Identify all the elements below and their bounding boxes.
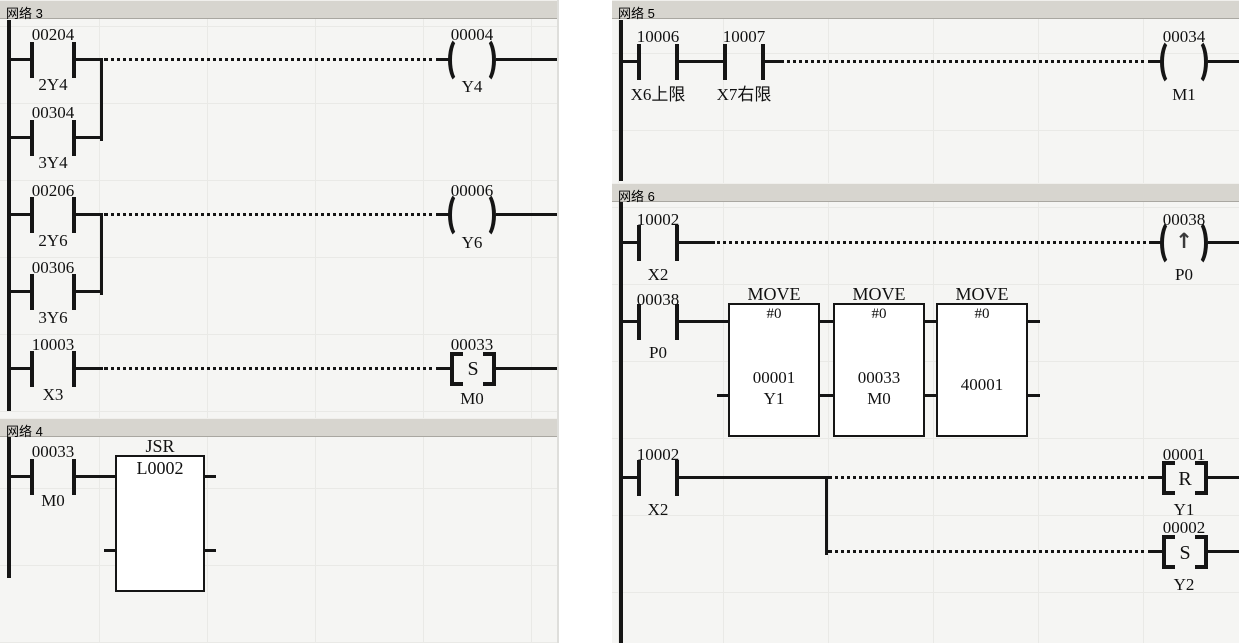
wire	[765, 60, 780, 63]
symbol-label: X6上限	[631, 86, 686, 103]
block-operand: Y1	[764, 390, 785, 407]
address-label: 00038	[637, 291, 680, 308]
wire	[205, 549, 216, 552]
wire	[1208, 241, 1239, 244]
branch-wire	[825, 476, 828, 555]
wire	[76, 367, 103, 370]
contact-bar[interactable]	[637, 460, 641, 496]
wire	[9, 136, 30, 139]
symbol-label: X2	[648, 501, 669, 518]
address-label: 10003	[32, 336, 75, 353]
contact-bar[interactable]	[637, 304, 641, 340]
branch-wire	[100, 213, 103, 295]
wire	[679, 476, 828, 479]
power-rail	[619, 202, 623, 643]
block-operand: #0	[872, 307, 887, 322]
coil-function-letter: R	[1178, 469, 1191, 489]
wire	[9, 367, 30, 370]
wire	[76, 290, 102, 293]
contact-bar[interactable]	[30, 459, 34, 495]
address-label: 00001	[1163, 446, 1206, 463]
symbol-label: M0	[41, 492, 65, 509]
address-label: 00204	[32, 26, 75, 43]
network-header-4[interactable]: 网络 4	[0, 418, 557, 437]
move-block[interactable]	[936, 303, 1028, 437]
address-label: 00006	[451, 182, 494, 199]
block-operand: M0	[867, 390, 891, 407]
wire	[1208, 476, 1239, 479]
symbol-label: 3Y4	[38, 154, 67, 171]
wire	[76, 213, 103, 216]
wire	[1028, 394, 1040, 397]
network-title: 网络 6	[618, 189, 655, 204]
block-operand: 00033	[858, 369, 901, 386]
wire-dotted	[828, 550, 1152, 553]
contact-bar[interactable]	[30, 120, 34, 156]
contact-bar[interactable]	[637, 44, 641, 80]
wire-dotted	[104, 58, 440, 61]
wire	[76, 475, 115, 478]
branch-wire	[100, 58, 103, 141]
symbol-label: M0	[460, 390, 484, 407]
wire-dotted	[828, 476, 1152, 479]
network-header-6[interactable]: 网络 6	[612, 183, 1239, 202]
address-label: 00034	[1163, 28, 1206, 45]
symbol-label: X3	[43, 386, 64, 403]
wire-dotted	[104, 367, 440, 370]
ladder-panel-right: 网络 5 10006 X6上限 10007 X7右限 00034 M1 网络 6	[612, 0, 1239, 643]
symbol-label: P0	[1175, 266, 1193, 283]
wire	[1152, 550, 1162, 553]
wire	[9, 290, 30, 293]
wire	[679, 241, 712, 244]
wire-dotted	[780, 60, 1152, 63]
wire	[621, 60, 637, 63]
block-operand: #0	[767, 307, 782, 322]
address-label: 00306	[32, 259, 75, 276]
contact-bar[interactable]	[30, 42, 34, 78]
address-label: 00304	[32, 104, 75, 121]
address-label: 10002	[637, 211, 680, 228]
wire	[496, 367, 557, 370]
wire-dotted	[712, 241, 1152, 244]
address-label: 00033	[32, 443, 75, 460]
contact-bar[interactable]	[637, 225, 641, 261]
wire	[496, 58, 557, 61]
block-title: MOVE	[956, 285, 1009, 303]
wire	[9, 213, 30, 216]
wire	[621, 241, 637, 244]
wire	[76, 58, 103, 61]
symbol-label: Y1	[1174, 501, 1195, 518]
wire	[621, 476, 637, 479]
block-operand: 00001	[753, 369, 796, 386]
wire-dotted	[104, 213, 440, 216]
wire	[9, 475, 30, 478]
wire	[1028, 320, 1040, 323]
address-label: 00004	[451, 26, 494, 43]
block-operand: L0002	[137, 459, 184, 477]
contact-bar[interactable]	[30, 197, 34, 233]
address-label: 00002	[1163, 519, 1206, 536]
rising-edge-arrow-icon: ↑	[1175, 231, 1193, 252]
wire	[1208, 550, 1239, 553]
symbol-label: X2	[648, 266, 669, 283]
network-title: 网络 3	[6, 6, 43, 21]
wire	[679, 60, 723, 63]
wire	[925, 394, 936, 397]
block-title: JSR	[145, 437, 174, 455]
symbol-label: Y2	[1174, 576, 1195, 593]
address-label: 00033	[451, 336, 494, 353]
coil-open-bracket-icon[interactable]	[1162, 461, 1175, 495]
block-title: MOVE	[748, 285, 801, 303]
address-label: 10006	[637, 28, 680, 45]
address-label: 00206	[32, 182, 75, 199]
contact-bar[interactable]	[723, 44, 727, 80]
symbol-label: X7右限	[717, 86, 772, 103]
ladder-panel-left: 网络 3 00204 2Y4 00004 Y4 00304 3Y4	[0, 0, 559, 643]
power-rail	[7, 437, 11, 578]
symbol-label: 3Y6	[38, 309, 67, 326]
wire	[1152, 476, 1162, 479]
coil-close-bracket-icon[interactable]	[1195, 461, 1208, 495]
address-label: 10002	[637, 446, 680, 463]
network-header-3[interactable]: 网络 3	[0, 0, 557, 19]
wire	[820, 394, 833, 397]
block-operand: #0	[975, 307, 990, 322]
coil-close-bracket-icon[interactable]	[1195, 535, 1208, 569]
wire	[76, 136, 102, 139]
wire	[205, 475, 216, 478]
network-title: 网络 5	[618, 6, 655, 21]
wire	[925, 320, 936, 323]
coil-function-letter: S	[467, 359, 478, 379]
wire	[496, 213, 557, 216]
wire	[1208, 60, 1239, 63]
symbol-label: 2Y6	[38, 232, 67, 249]
symbol-label: Y6	[462, 234, 483, 251]
wire	[717, 394, 728, 397]
address-label: 00038	[1163, 211, 1206, 228]
contact-bar[interactable]	[30, 274, 34, 310]
coil-open-bracket-icon[interactable]	[450, 352, 463, 386]
coil-function-letter: S	[1179, 543, 1190, 563]
symbol-label: M1	[1172, 86, 1196, 103]
network-title: 网络 4	[6, 424, 43, 439]
symbol-label: P0	[649, 344, 667, 361]
wire	[9, 58, 30, 61]
power-rail	[619, 20, 623, 181]
contact-bar[interactable]	[30, 351, 34, 387]
wire	[621, 320, 637, 323]
ladder-editor-page: 网络 3 00204 2Y4 00004 Y4 00304 3Y4	[0, 0, 1239, 643]
wire	[679, 320, 728, 323]
wire	[820, 320, 833, 323]
wire	[104, 549, 115, 552]
symbol-label: Y4	[462, 78, 483, 95]
wire	[440, 367, 450, 370]
block-operand: 40001	[961, 376, 1004, 393]
network-header-5[interactable]: 网络 5	[612, 0, 1239, 19]
address-label: 10007	[723, 28, 766, 45]
block-title: MOVE	[853, 285, 906, 303]
symbol-label: 2Y4	[38, 76, 67, 93]
coil-close-bracket-icon[interactable]	[483, 352, 496, 386]
coil-open-bracket-icon[interactable]	[1162, 535, 1175, 569]
